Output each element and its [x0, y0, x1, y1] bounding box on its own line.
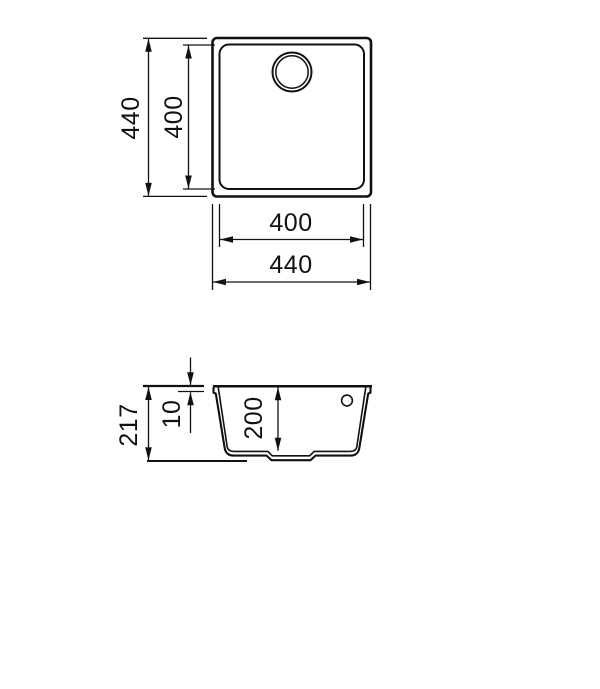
dim-inner-height: 400: [160, 45, 215, 189]
dim-rim-thickness: 10: [158, 358, 204, 434]
side-view: 217 10 200: [115, 358, 372, 462]
sink-bowl-edge: [220, 45, 365, 190]
drain-hole-outer-circle: [273, 53, 312, 92]
dim-bowl-depth: 200: [240, 387, 278, 451]
dim-inner-width: 400: [220, 204, 364, 247]
dim-outer-height-label: 440: [117, 96, 145, 139]
dim-inner-height-label: 400: [160, 95, 188, 138]
dim-rim-thickness-label: 10: [158, 400, 186, 429]
top-view: 440 400 400 440: [117, 38, 371, 290]
sink-outer-profile: [214, 387, 371, 460]
dim-bowl-depth-label: 200: [240, 396, 268, 439]
drain-hole-inner-circle: [276, 56, 308, 88]
overflow-hole: [342, 395, 353, 406]
sink-outer-rim: [213, 38, 372, 197]
drawing-canvas: 440 400 400 440: [0, 0, 600, 689]
sink-technical-drawing: 440 400 400 440: [0, 0, 600, 689]
dim-outer-width-label: 440: [269, 251, 312, 279]
dim-inner-width-label: 400: [269, 209, 312, 237]
dim-total-height-label: 217: [115, 403, 143, 446]
